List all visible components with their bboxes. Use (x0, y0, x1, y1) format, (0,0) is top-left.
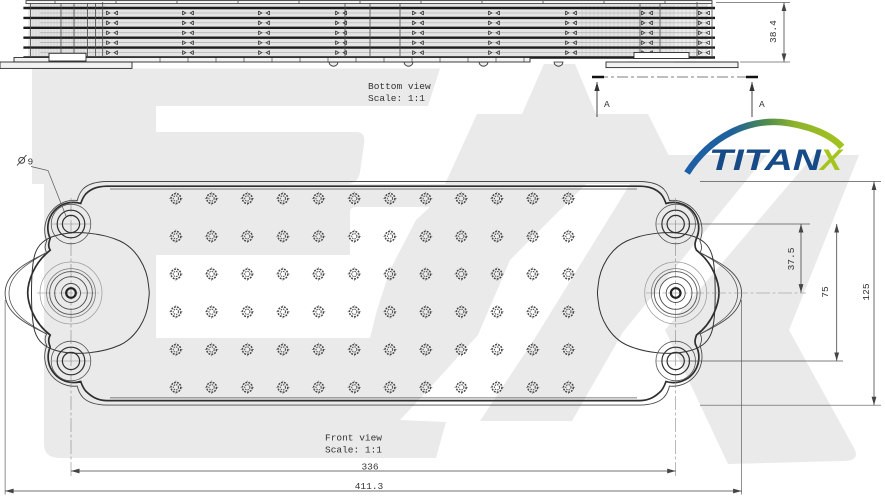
svg-text:A: A (759, 99, 765, 110)
svg-text:A: A (604, 99, 610, 110)
svg-text:125: 125 (861, 283, 872, 300)
svg-text:38.4: 38.4 (768, 20, 779, 43)
svg-text:Scale: 1:1: Scale: 1:1 (325, 445, 382, 456)
svg-text:411.3: 411.3 (355, 481, 384, 492)
svg-text:X: X (818, 144, 844, 177)
svg-text:9: 9 (28, 157, 34, 168)
svg-text:75: 75 (820, 286, 831, 298)
svg-text:TITAN: TITAN (709, 144, 823, 177)
svg-text:Scale: 1:1: Scale: 1:1 (368, 93, 425, 104)
svg-text:Front view: Front view (325, 433, 382, 444)
svg-text:Bottom view: Bottom view (368, 81, 431, 92)
svg-text:37.5: 37.5 (786, 247, 797, 270)
svg-text:336: 336 (361, 461, 378, 472)
